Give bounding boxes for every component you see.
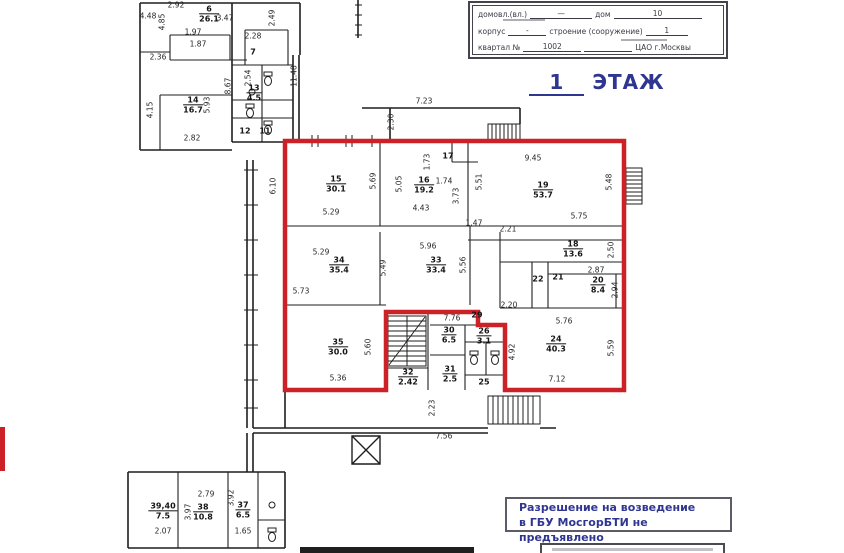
floor-word: ЭТАЖ: [592, 70, 664, 94]
dimension-label: 2.50: [607, 242, 616, 259]
dimension-label: 4.43: [413, 204, 430, 213]
room-label-24: 2440.3: [546, 334, 566, 353]
form-label: домовл.(вл.): [478, 10, 527, 19]
form-value: —: [530, 9, 592, 19]
room-label-11: 11: [257, 126, 272, 135]
room-label-39,40: 39,407.5: [148, 501, 177, 520]
room-label-26: 263.1: [476, 326, 491, 345]
dimension-label: 6.10: [269, 178, 278, 195]
room-label-18: 1813.6: [563, 239, 583, 258]
floor-number: 1: [529, 70, 584, 96]
dimension-label: 5.59: [607, 340, 616, 357]
room-label-19: 1953.7: [533, 180, 553, 199]
dimension-label: 3.92: [227, 490, 236, 507]
form-label: корпус: [478, 27, 505, 36]
room-label-22: 22: [530, 274, 545, 283]
room-label-21: 21: [550, 272, 565, 281]
dimension-label: 5.36: [330, 374, 347, 383]
dimension-label: 5.56: [459, 257, 468, 274]
form-label: строение (сооружение): [549, 27, 642, 36]
dimension-label: 7.23: [416, 97, 433, 106]
room-label-25: 25: [476, 377, 491, 386]
dimension-label: 2.36: [150, 53, 167, 62]
form-value: -: [508, 26, 546, 36]
room-label-12: 12: [237, 126, 252, 135]
dimension-label: 7.12: [549, 375, 566, 384]
dimension-label: 1.47: [466, 219, 483, 228]
dimension-label: 5.29: [313, 248, 330, 257]
toilet-icon: [268, 528, 276, 542]
form-value: [584, 51, 632, 52]
dimension-label: 4.48: [140, 12, 157, 21]
room-label-34: 3435.4: [329, 255, 349, 274]
dimension-label: 2.23: [428, 400, 437, 417]
floor-title: 1ЭТАЖ: [512, 70, 682, 94]
dimension-label: 4.92: [508, 344, 517, 361]
bottom-wall-bar: [300, 547, 474, 553]
room-label-13: 134.5: [246, 83, 261, 102]
room-label-16: 1619.2: [414, 175, 434, 194]
dimension-label: 11.48: [290, 65, 299, 86]
dimension-label: 5.60: [364, 339, 373, 356]
elevator-icon: [352, 436, 380, 464]
room-label-20: 208.4: [590, 275, 605, 294]
dimension-label: 5.75: [571, 212, 588, 221]
form-label: дом: [595, 10, 610, 19]
dimension-label: 2.07: [155, 527, 172, 536]
dimension-label: 3.47: [217, 14, 234, 23]
dimension-label: 3.73: [452, 188, 461, 205]
dimension-label: 1.97: [185, 28, 202, 37]
dimension-label: 2.28: [245, 32, 262, 41]
dimension-label: 5.05: [395, 176, 404, 193]
dimension-label: 4.85: [158, 14, 167, 31]
dimension-label: 2.87: [588, 266, 605, 275]
stamp-line-2: в ГБУ МосгорБТИ не предъявлено: [519, 516, 730, 546]
dimension-label: 7.56: [436, 432, 453, 441]
permission-stamp: Разрешение на возведение в ГБУ МосгорБТИ…: [505, 497, 732, 532]
sink-icon: [269, 502, 275, 508]
bti-form: домовл.(вл.) — дом 10 корпус - строение …: [468, 1, 728, 59]
dimension-label: 5.96: [420, 242, 437, 251]
toilet-icon: [264, 72, 272, 86]
floor-plan-drawing: [0, 0, 844, 553]
dimension-label: 3.97: [184, 504, 193, 521]
dimension-label: 8.67: [224, 78, 233, 95]
dimension-label: 2.94: [611, 282, 620, 299]
dimension-label: 2.30: [387, 114, 396, 131]
form-value: 1: [646, 26, 688, 36]
bti-form-fields: домовл.(вл.) — дом 10 корпус - строение …: [472, 5, 724, 55]
dimension-label: 2.92: [168, 1, 185, 10]
dimension-label: 4.15: [146, 102, 155, 119]
dimension-label: 1.73: [423, 154, 432, 171]
toilet-icon: [246, 104, 254, 118]
room-label-29: 29: [469, 310, 484, 319]
room-label-14: 1416.7: [183, 95, 203, 114]
left-red-outline-fragment: [0, 427, 5, 471]
illegible-text: [552, 548, 713, 551]
form-value: 1002: [523, 42, 581, 52]
stamp-line-1: Разрешение на возведение: [519, 501, 730, 516]
room-label-15: 1530.1: [326, 174, 346, 193]
dimension-label: 9.45: [525, 154, 542, 163]
partial-stamp-box: [540, 543, 725, 553]
form-label: ЦАО г.Москвы: [635, 43, 691, 52]
dimension-label: 2.21: [500, 225, 517, 234]
room-label-33: 3333.4: [426, 255, 446, 274]
room-label-30: 306.5: [441, 325, 456, 344]
room-label-32: 322.42: [398, 367, 418, 386]
bti-floor-plan-sheet: 626.17134.51416.712111530.11619.2171953.…: [0, 0, 844, 553]
dimension-label: 1.87: [190, 40, 207, 49]
dimension-label: 2.49: [268, 10, 277, 27]
room-label-17: 17: [440, 151, 455, 160]
form-smallprint: [621, 39, 667, 41]
dimension-label: 2.20: [501, 301, 518, 310]
room-label-6: 626.1: [199, 4, 219, 23]
dimension-label: 2.82: [184, 134, 201, 143]
dimension-label: 5.48: [605, 174, 614, 191]
room-label-7: 7: [248, 47, 258, 56]
dimension-label: 7.76: [444, 314, 461, 323]
toilet-icon: [491, 351, 499, 365]
dimension-label: 5.76: [556, 317, 573, 326]
form-value: 10: [614, 9, 702, 19]
dimension-label: 2.79: [198, 490, 215, 499]
form-label: квартал №: [478, 43, 520, 52]
dimension-label: 5.49: [379, 260, 388, 277]
toilet-icon: [470, 351, 478, 365]
room-label-37: 376.5: [235, 500, 250, 519]
dimension-label: 5.29: [323, 208, 340, 217]
dimension-label: 5.93: [203, 97, 212, 114]
dimension-label: 5.73: [293, 287, 310, 296]
room-label-38: 3810.8: [193, 502, 213, 521]
dimension-label: 1.74: [436, 177, 453, 186]
room-label-31: 312.5: [442, 364, 457, 383]
dimension-label: 1.65: [235, 527, 252, 536]
room-label-35: 3530.0: [328, 337, 348, 356]
dimension-label: 5.51: [475, 174, 484, 191]
form-smallprint: [503, 19, 545, 21]
dimension-label: 5.69: [369, 173, 378, 190]
